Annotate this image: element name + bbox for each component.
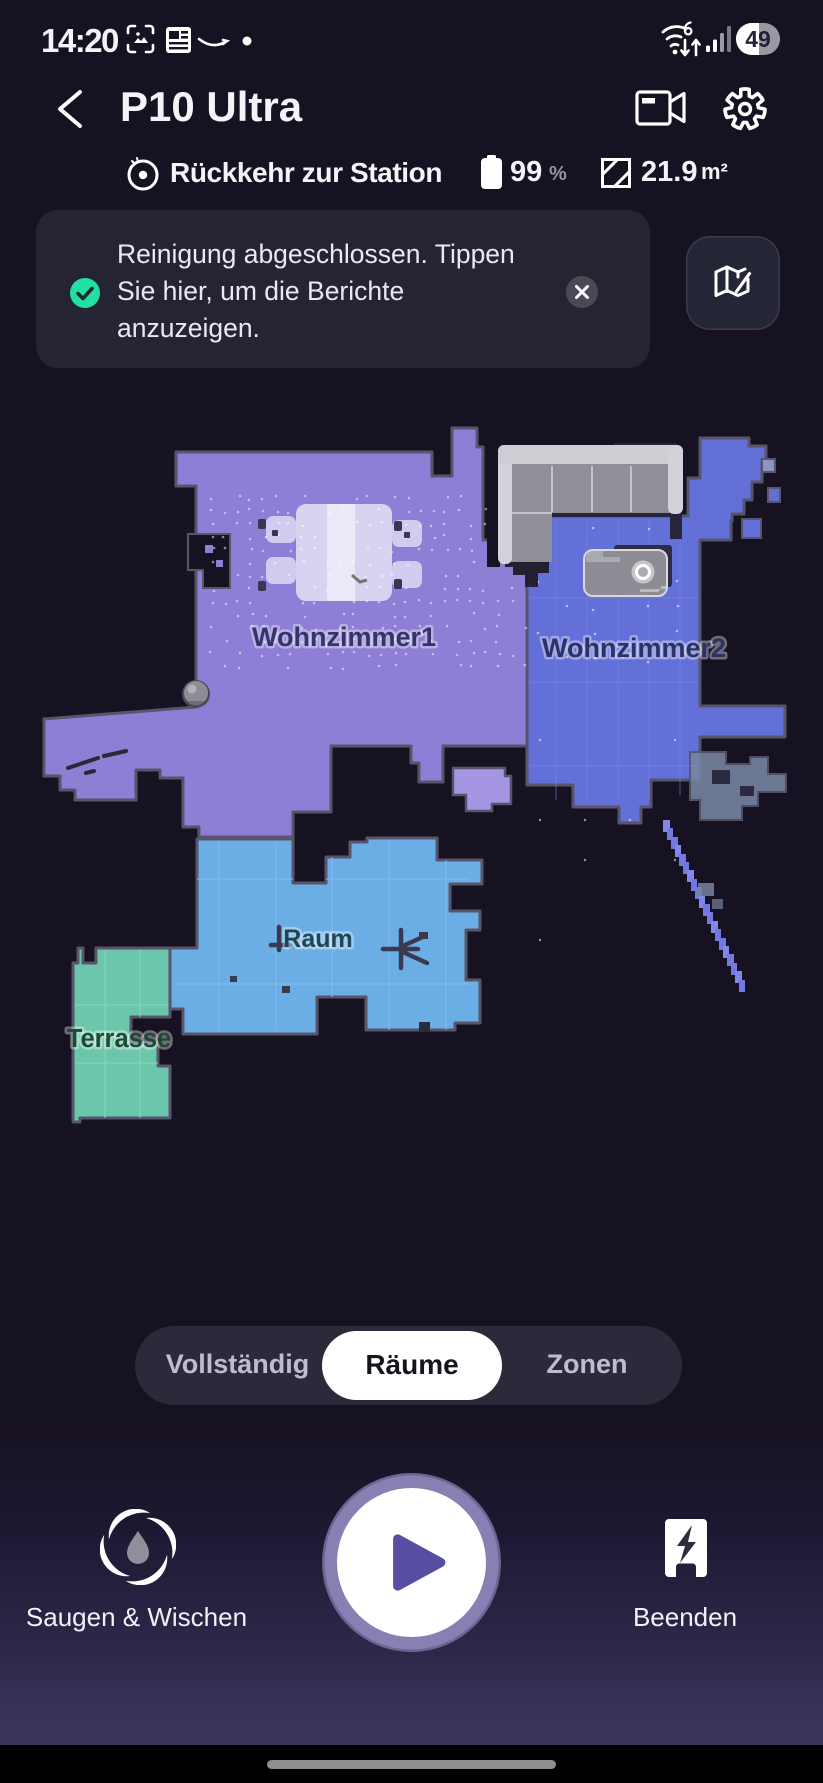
svg-text:Wohnzimmer2: Wohnzimmer2	[542, 633, 726, 663]
svg-text:Raum: Raum	[283, 925, 352, 953]
svg-text:Wohnzimmer1: Wohnzimmer1	[252, 622, 436, 652]
svg-text:Terrasse: Terrasse	[67, 1025, 171, 1053]
